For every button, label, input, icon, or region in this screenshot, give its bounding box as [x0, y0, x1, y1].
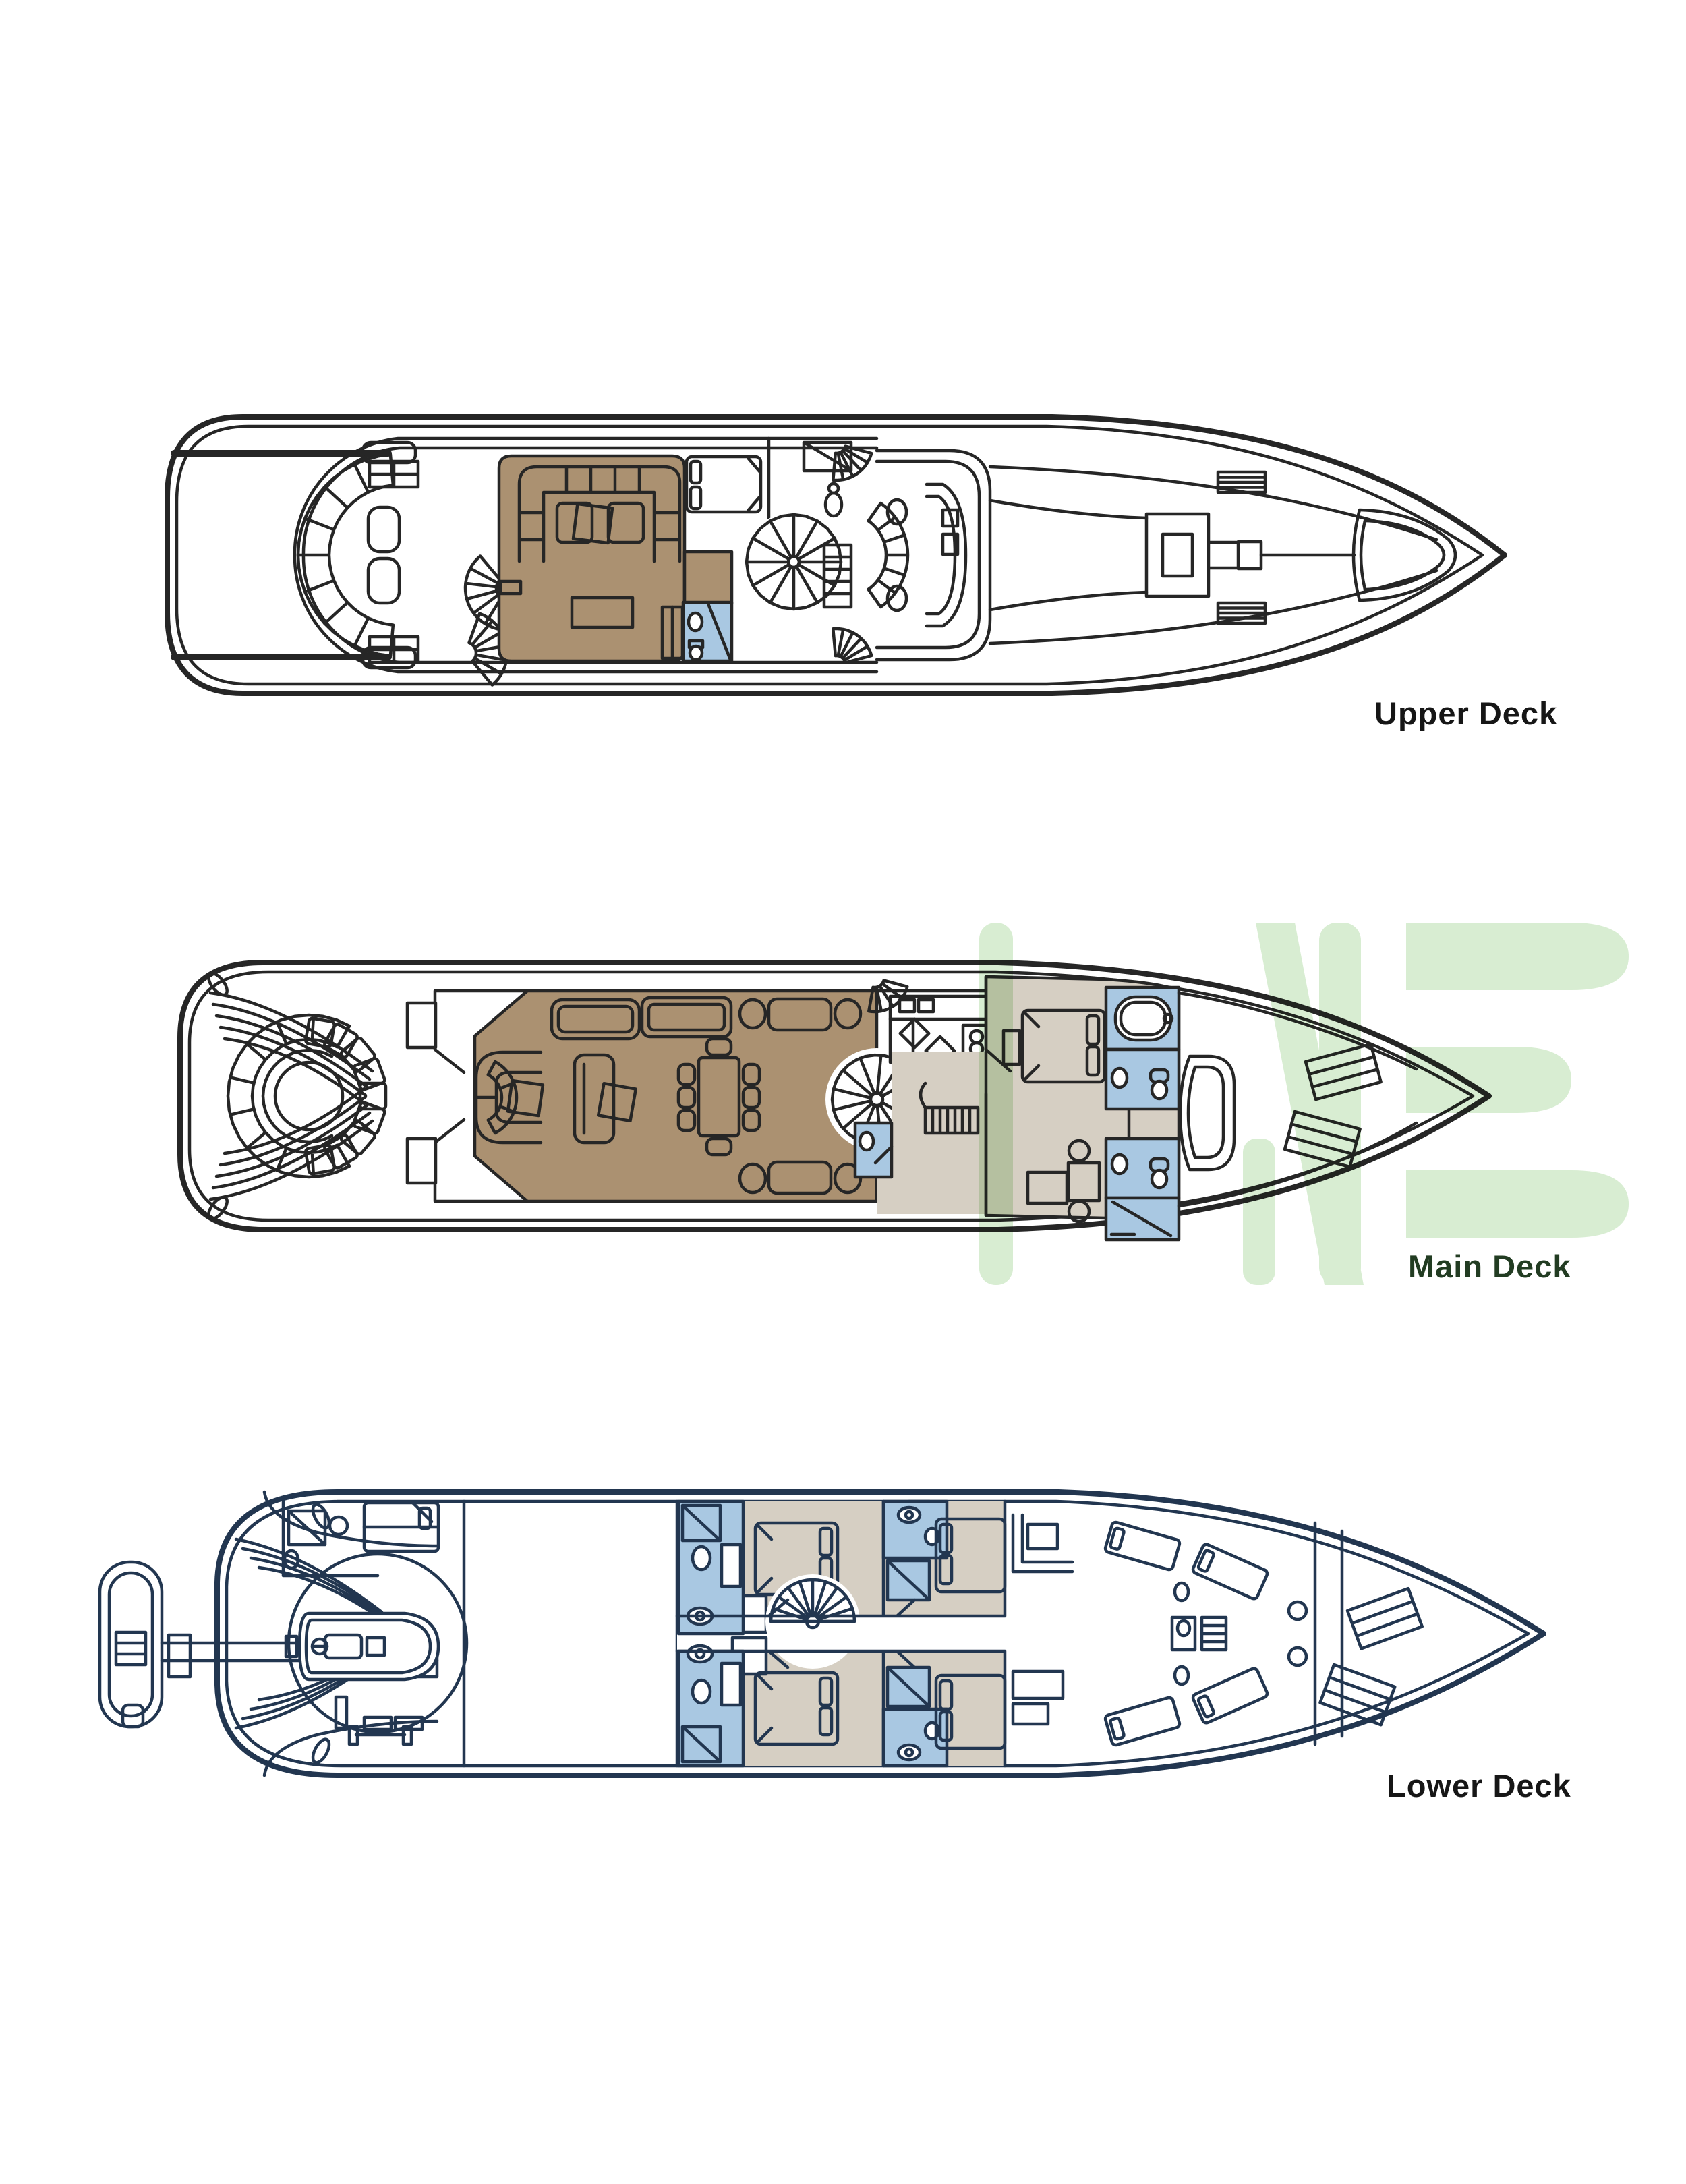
guest-cabins	[677, 1501, 1005, 1766]
main-deck-label: Main Deck	[1408, 1248, 1571, 1285]
spiral-staircase-icon	[744, 512, 844, 612]
lower-deck-plan	[100, 1492, 1544, 1775]
deck-plans-canvas	[0, 0, 1686, 2184]
lower-deck-label: Lower Deck	[1387, 1767, 1571, 1804]
sink-icon	[693, 1547, 710, 1570]
toilet-icon	[1152, 1170, 1167, 1188]
toilet-icon	[1152, 1081, 1167, 1099]
sink-icon	[860, 1132, 873, 1150]
upper-bathroom	[683, 602, 732, 661]
upper-deck-plan	[167, 417, 1505, 693]
sink-icon	[898, 1507, 920, 1522]
sink-icon	[688, 1646, 712, 1662]
day-head	[855, 1123, 892, 1177]
main-salon	[475, 991, 877, 1201]
sink-icon	[689, 613, 702, 631]
shower-icon	[888, 1667, 929, 1706]
toilet-icon	[690, 646, 702, 660]
sink-icon	[1112, 1068, 1127, 1087]
deck-plans-page: Upper Deck Main Deck Lower Deck	[0, 0, 1686, 2184]
sink-icon	[1112, 1155, 1127, 1174]
shower-icon	[888, 1561, 929, 1600]
spiral-staircase-icon	[765, 1574, 860, 1669]
upper-deck-label: Upper Deck	[1374, 695, 1557, 732]
sink-icon	[693, 1680, 710, 1703]
sink-icon	[898, 1745, 920, 1760]
